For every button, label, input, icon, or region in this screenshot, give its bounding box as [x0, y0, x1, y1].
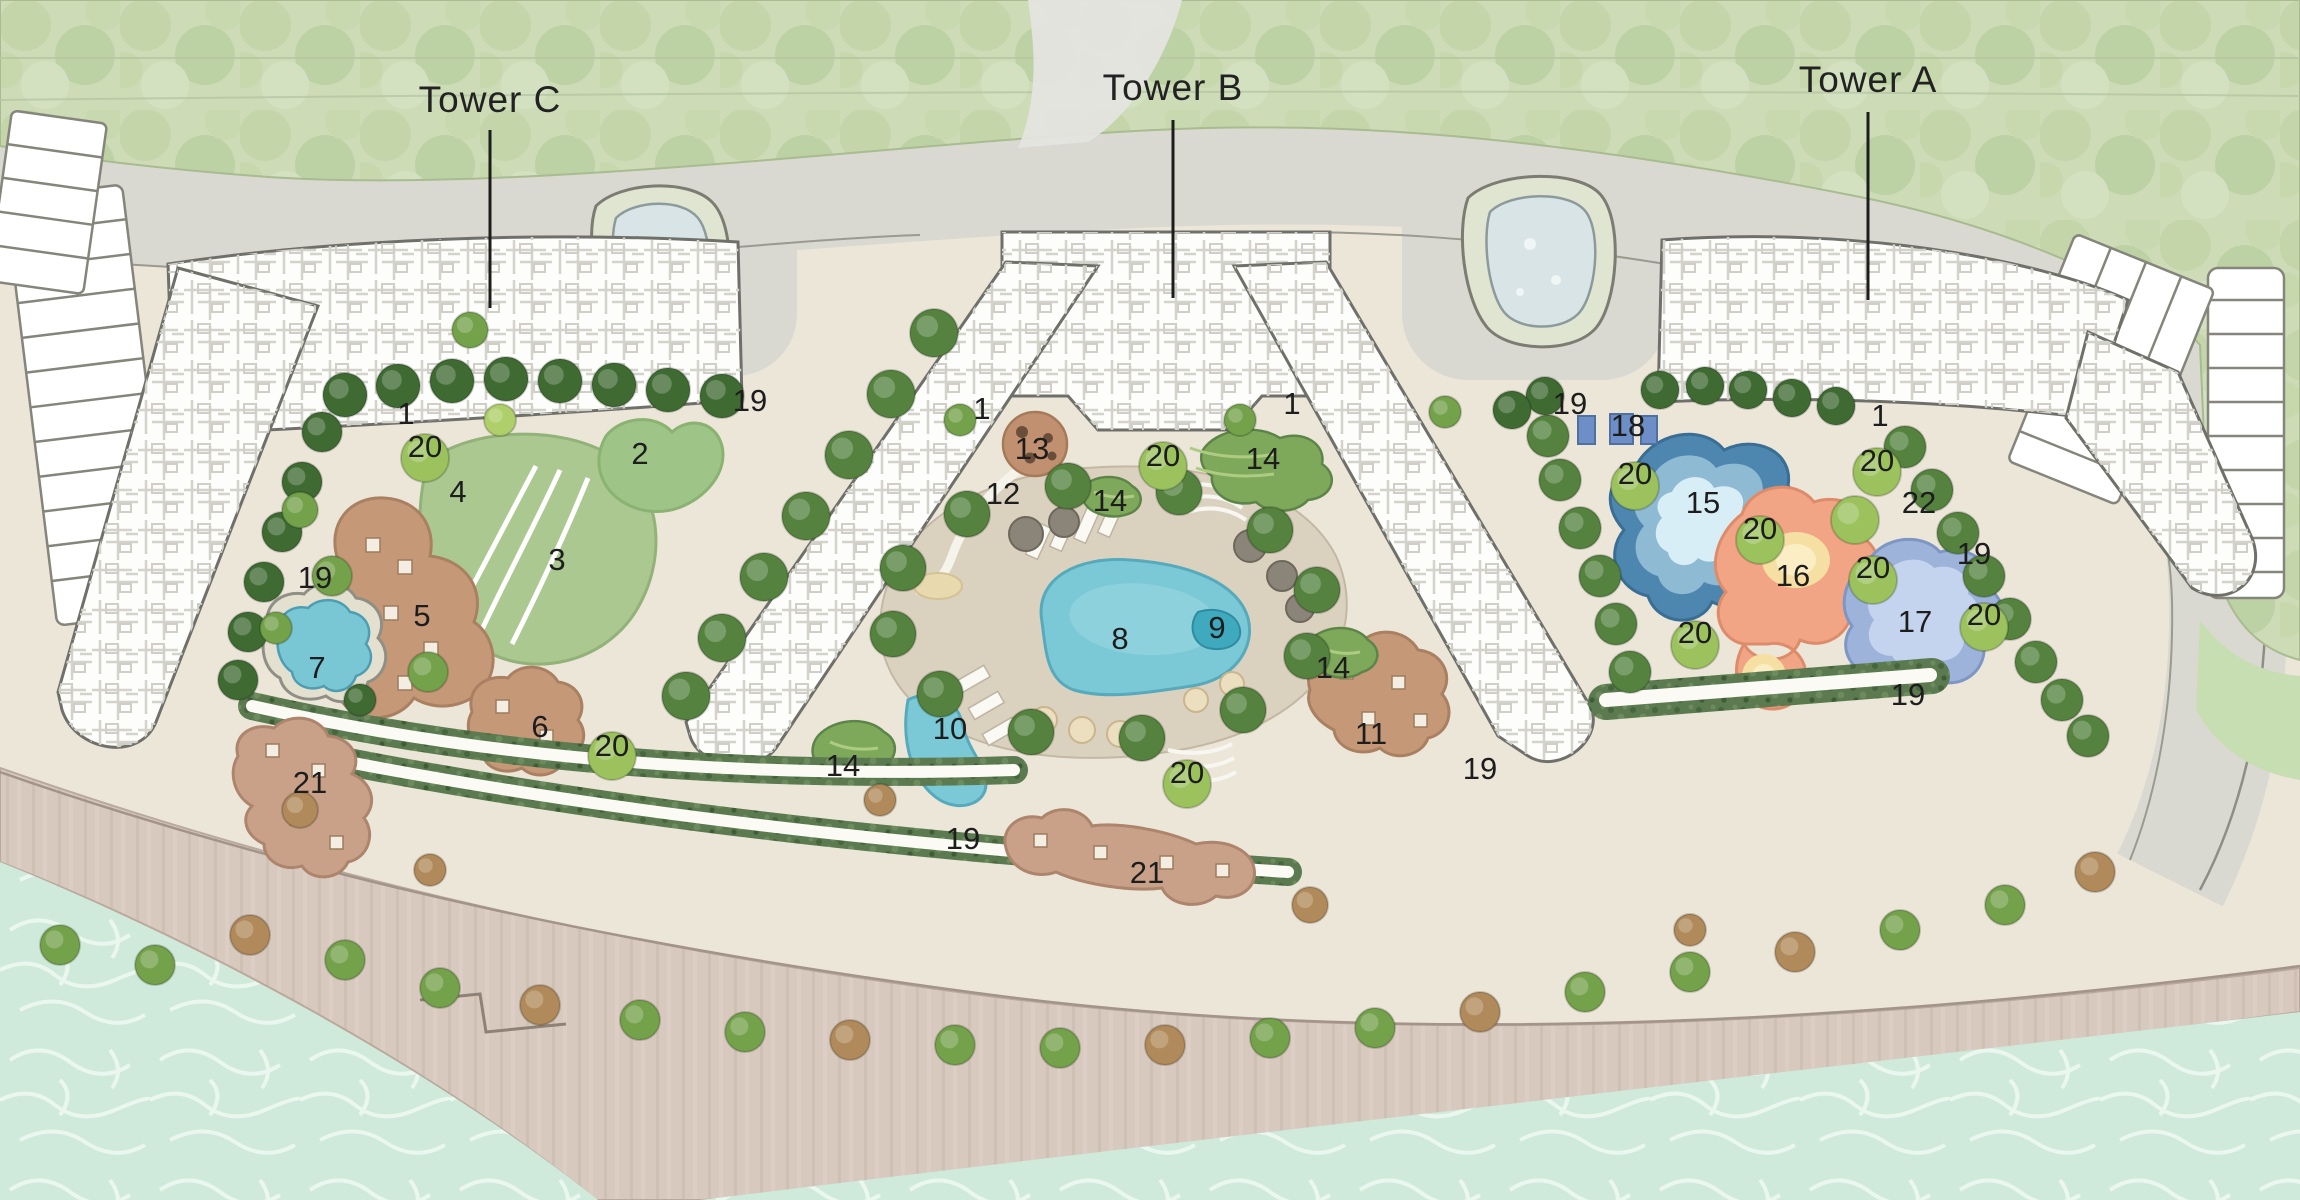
tree [1831, 496, 1879, 544]
tree [1595, 603, 1637, 645]
marker-7: 7 [308, 650, 325, 685]
palm-tree [830, 1020, 870, 1060]
marker-14: 14 [1093, 483, 1127, 518]
palm-tree [1460, 992, 1500, 1032]
tree [1527, 415, 1569, 457]
tree [1250, 1018, 1290, 1058]
marker-8: 8 [1111, 621, 1128, 656]
tree [2067, 715, 2109, 757]
marker-5: 5 [413, 598, 430, 633]
tower-b-label: Tower B [1103, 67, 1244, 108]
marker-20: 20 [1678, 615, 1712, 650]
tree [1579, 555, 1621, 597]
palm-tree [1145, 1025, 1185, 1065]
tree [1817, 387, 1855, 425]
palm-tree [864, 784, 896, 816]
marker-1: 1 [973, 391, 990, 426]
marker-1: 1 [397, 396, 414, 431]
tree [1880, 910, 1920, 950]
marker-19: 19 [1553, 386, 1587, 421]
tree [910, 309, 958, 357]
marker-16: 16 [1776, 558, 1810, 593]
tree [1045, 463, 1091, 509]
tree [782, 492, 830, 540]
site-plan-svg: Tower CTower BTower A 111123456789101112… [0, 0, 2300, 1200]
marker-22: 22 [1902, 485, 1936, 520]
marker-19: 19 [733, 383, 767, 418]
tree [244, 562, 284, 602]
marker-19: 19 [298, 560, 332, 595]
marker-20: 20 [1860, 443, 1894, 478]
tree [135, 945, 175, 985]
marker-20: 20 [1146, 438, 1180, 473]
tree [867, 370, 915, 418]
marker-1: 1 [1283, 386, 1300, 421]
tree [1565, 972, 1605, 1012]
tree [825, 431, 873, 479]
tree [1294, 567, 1340, 613]
marker-19: 19 [1957, 536, 1991, 571]
tree [1985, 885, 2025, 925]
tree [282, 492, 318, 528]
tree [1773, 379, 1811, 417]
marker-19: 19 [1891, 677, 1925, 712]
tree [1429, 396, 1461, 428]
tree [420, 968, 460, 1008]
palm-tree [414, 854, 446, 886]
tower-a-label: Tower A [1799, 59, 1938, 100]
tree [1493, 391, 1531, 429]
tree [1686, 367, 1724, 405]
marker-2: 2 [631, 436, 648, 471]
tree [1670, 952, 1710, 992]
tree [430, 359, 474, 403]
marker-14: 14 [826, 748, 860, 783]
tree [870, 611, 916, 657]
tree [944, 404, 976, 436]
marker-1: 1 [1871, 398, 1888, 433]
tree [1008, 709, 1054, 755]
tree [620, 1000, 660, 1040]
marker-4: 4 [449, 474, 466, 509]
marker-21: 21 [1130, 855, 1164, 890]
tree [1641, 371, 1679, 409]
marker-21: 21 [293, 765, 327, 800]
tree [1559, 507, 1601, 549]
tree [944, 491, 990, 537]
palm-tree [1292, 887, 1328, 923]
tree [1539, 459, 1581, 501]
tree [1220, 687, 1266, 733]
tree [484, 404, 516, 436]
marker-12: 12 [986, 476, 1020, 511]
tree [1355, 1008, 1395, 1048]
marker-20: 20 [408, 429, 442, 464]
marker-19: 19 [946, 821, 980, 856]
marker-20: 20 [1170, 755, 1204, 790]
marker-20: 20 [1856, 550, 1890, 585]
tree [2041, 679, 2083, 721]
marker-17: 17 [1898, 604, 1932, 639]
marker-20: 20 [1743, 511, 1777, 546]
tree [1119, 715, 1165, 761]
tree [323, 373, 367, 417]
tree [538, 359, 582, 403]
marker-18: 18 [1611, 408, 1645, 443]
tree [1224, 404, 1256, 436]
tree [260, 612, 292, 644]
tree [935, 1025, 975, 1065]
marker-9: 9 [1208, 610, 1225, 645]
marker-11: 11 [1355, 716, 1387, 751]
tree [484, 357, 528, 401]
tree [325, 940, 365, 980]
tree [1040, 1028, 1080, 1068]
marker-6: 6 [531, 709, 548, 744]
tree [40, 925, 80, 965]
palm-tree [1674, 914, 1706, 946]
tree [725, 1012, 765, 1052]
tower-c-label: Tower C [419, 79, 562, 120]
tree [302, 412, 342, 452]
marker-14: 14 [1316, 650, 1350, 685]
marker-20: 20 [1967, 597, 2001, 632]
tree [646, 368, 690, 412]
marker-19: 19 [1463, 751, 1497, 786]
marker-14: 14 [1246, 441, 1280, 476]
marker-15: 15 [1686, 485, 1720, 520]
tree [1247, 507, 1293, 553]
tree [880, 545, 926, 591]
tree [698, 614, 746, 662]
marker-13: 13 [1015, 431, 1049, 466]
palm-tree [1775, 932, 1815, 972]
marker-20: 20 [595, 728, 629, 763]
tree [452, 312, 488, 348]
tree [344, 684, 376, 716]
tree [2015, 641, 2057, 683]
tree [740, 553, 788, 601]
tree [662, 672, 710, 720]
marker-20: 20 [1618, 456, 1652, 491]
tree [408, 652, 448, 692]
site-plan: Tower CTower BTower A 111123456789101112… [0, 0, 2300, 1200]
palm-tree [230, 915, 270, 955]
marker-3: 3 [548, 542, 565, 577]
tree [592, 363, 636, 407]
tree [218, 660, 258, 700]
palm-tree [2075, 852, 2115, 892]
tree [1729, 371, 1767, 409]
palm-tree [520, 985, 560, 1025]
tree [1609, 651, 1651, 693]
marker-10: 10 [933, 711, 967, 746]
pond-east [1462, 176, 1615, 346]
